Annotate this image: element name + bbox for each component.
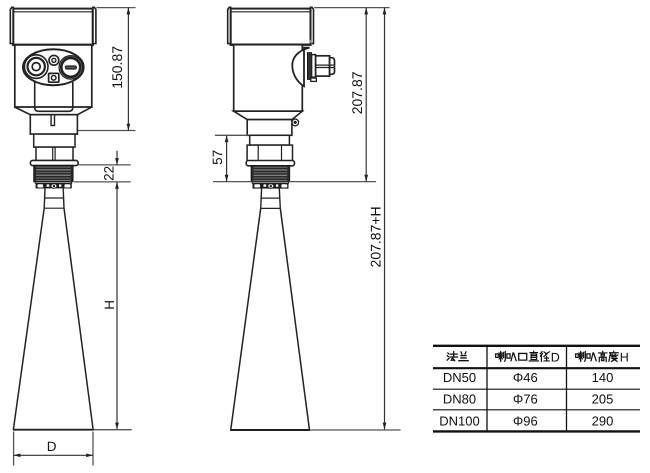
svg-text:205: 205 (592, 391, 614, 406)
svg-text:H: H (620, 351, 629, 365)
svg-text:22: 22 (102, 166, 117, 181)
svg-text:DN80: DN80 (443, 391, 476, 406)
svg-text:DN50: DN50 (443, 370, 476, 385)
svg-text:57: 57 (210, 150, 225, 165)
svg-text:D: D (551, 351, 560, 365)
svg-text:D: D (47, 439, 57, 454)
svg-text:150.87: 150.87 (109, 46, 125, 89)
svg-text:Φ46: Φ46 (513, 370, 538, 385)
svg-text:Φ96: Φ96 (513, 414, 538, 429)
svg-text:DN100: DN100 (439, 414, 479, 429)
svg-text:140: 140 (592, 370, 614, 385)
svg-text:Φ76: Φ76 (513, 391, 538, 406)
svg-text:207.87: 207.87 (349, 71, 365, 114)
svg-text:H: H (102, 300, 117, 310)
svg-text:290: 290 (592, 414, 614, 429)
svg-text:207.87+H: 207.87+H (367, 206, 383, 267)
